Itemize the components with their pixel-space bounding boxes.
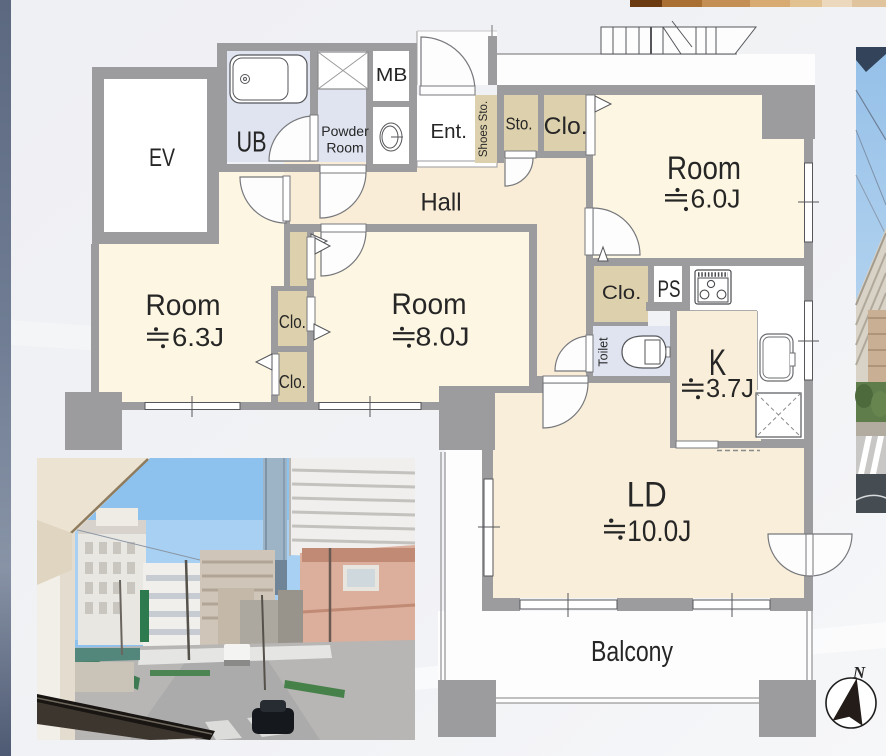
- svg-text:6.3J: 6.3J: [172, 322, 224, 352]
- svg-text:UB: UB: [237, 127, 267, 159]
- svg-text:Clo.: Clo.: [279, 312, 306, 332]
- svg-text:Room: Room: [146, 289, 221, 322]
- svg-text:3.7J: 3.7J: [706, 373, 754, 403]
- svg-text:Balcony: Balcony: [591, 636, 673, 668]
- svg-text:8.0J: 8.0J: [416, 322, 470, 352]
- svg-text:N: N: [852, 663, 866, 682]
- svg-text:Room: Room: [667, 150, 741, 186]
- svg-text:Shoes Sto.: Shoes Sto.: [478, 101, 490, 157]
- svg-text:10.0J: 10.0J: [627, 515, 691, 548]
- svg-text:PS: PS: [658, 276, 681, 303]
- svg-text:Powder: Powder: [321, 123, 369, 139]
- svg-text:Hall: Hall: [421, 189, 462, 217]
- svg-text:Clo.: Clo.: [544, 113, 588, 140]
- svg-text:6.0J: 6.0J: [691, 186, 741, 214]
- svg-text:Clo.: Clo.: [602, 282, 642, 304]
- svg-text:MB: MB: [376, 65, 408, 85]
- svg-text:Room: Room: [392, 288, 467, 321]
- svg-text:LD: LD: [627, 476, 667, 515]
- svg-text:Clo.: Clo.: [279, 372, 306, 392]
- svg-text:Room: Room: [326, 140, 363, 156]
- svg-text:Toilet: Toilet: [597, 337, 611, 367]
- svg-text:Ent.: Ent.: [430, 120, 466, 143]
- svg-text:EV: EV: [149, 144, 175, 172]
- svg-text:Sto.: Sto.: [506, 114, 533, 134]
